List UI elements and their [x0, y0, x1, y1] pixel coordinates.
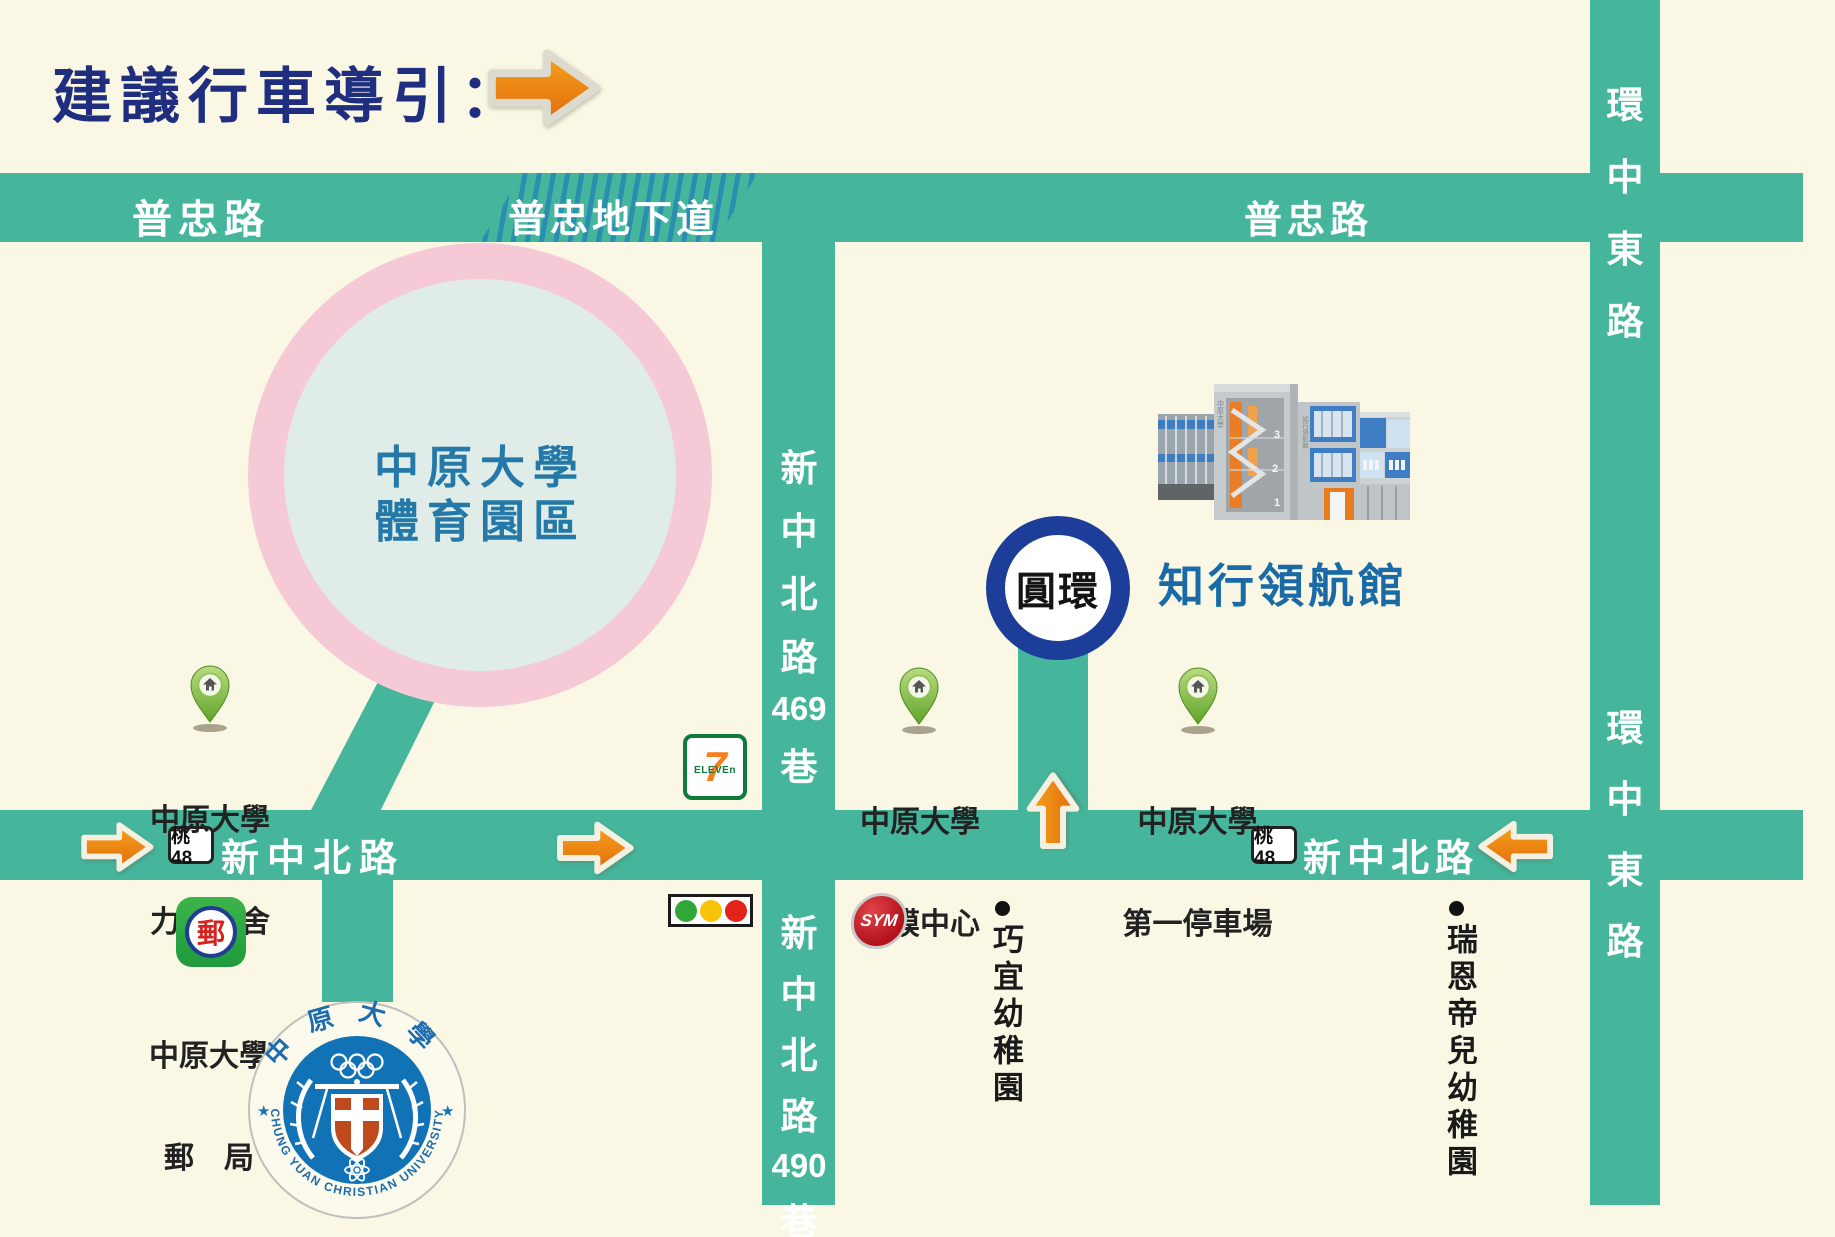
arrow-north-to-roundabout-icon — [1024, 770, 1082, 850]
sports-park-label: 中原大學 體育園區 — [248, 441, 712, 549]
char: 北 — [781, 564, 818, 618]
ruiendier-dot-icon — [1449, 901, 1464, 916]
logo-star-right: ★ — [441, 1103, 454, 1120]
char: 東 — [1607, 840, 1644, 894]
label-xinzhongbei-right: 新中北路 — [1303, 827, 1479, 882]
char: 路 — [1607, 911, 1644, 965]
building-name-label: 知行領航館 — [1158, 550, 1408, 616]
poi-line2: 第一停車場 — [1105, 908, 1290, 942]
poi-parking-lot1-label: 中原大學 第一停車場 — [1105, 738, 1290, 1010]
eleven-glyph: ELEVEn — [687, 765, 743, 776]
char: 中 — [781, 501, 818, 555]
arrow-west-right-side-icon — [1476, 818, 1554, 875]
road-campus-stub — [322, 880, 393, 1002]
poi-line1: 中原大學 — [1105, 806, 1290, 840]
building-rendering: 中原大學 3 2 1 知行領航館 — [1156, 376, 1412, 536]
char: 新 — [781, 903, 818, 957]
char: 中 — [1607, 769, 1644, 823]
traffic-red — [725, 900, 747, 922]
seven-eleven-icon: 7 ELEVEn — [683, 734, 747, 800]
sports-park-circle: 中原大學 體育園區 — [248, 243, 712, 707]
roundabout-circle: 圓環 — [986, 516, 1130, 660]
lane-number: 490 — [771, 1147, 826, 1185]
post-office-icon: 郵 — [176, 897, 246, 967]
page-title: 建議行車導引： — [52, 48, 528, 135]
building-side-text: 中原大學 — [1217, 399, 1225, 429]
label-huanzhongdong-top: 環 中 東 路 — [1597, 75, 1653, 345]
roundabout-label: 圓環 — [1016, 559, 1100, 617]
poi-line1: 中原大學 — [830, 806, 1010, 840]
arrow-east-mid-icon — [556, 818, 636, 878]
building-floor1: 1 — [1274, 497, 1280, 509]
pin-lixing-dorm-icon — [187, 664, 233, 734]
sports-park-line1: 中原大學 — [248, 441, 712, 495]
poi-ruiendier-kindergarten-label: 瑞恩帝兒幼稚園 — [1437, 923, 1482, 1182]
char: 環 — [1607, 698, 1644, 752]
label-puzhong-right: 普忠路 — [1244, 189, 1373, 244]
char: 路 — [1607, 291, 1644, 345]
char: 路 — [781, 627, 818, 681]
poi-lixing-dorm-label: 中原大學 力行宿舍 — [120, 736, 300, 1008]
label-lane490: 新 中 北 路 490 巷 — [770, 903, 828, 1237]
char: 巷 — [781, 737, 818, 791]
traffic-light-icon — [668, 894, 753, 927]
road-puzhong — [0, 173, 1803, 242]
label-underpass: 普忠地下道 — [508, 188, 718, 243]
char: 北 — [781, 1025, 818, 1079]
building-floor3: 3 — [1274, 429, 1280, 441]
campus-direction-map: 建議行車導引： 中原大學 體育園區 普忠路 普忠地下道 普忠路 新中北路 新中北… — [0, 0, 1835, 1237]
traffic-green — [675, 900, 697, 922]
char: 中 — [1607, 147, 1644, 201]
char: 環 — [1607, 75, 1644, 129]
poi-line1: 中原大學 — [120, 804, 300, 838]
char: 東 — [1607, 219, 1644, 273]
char: 巷 — [781, 1192, 818, 1237]
label-puzhong-left: 普忠路 — [132, 187, 270, 245]
building-floor2: 2 — [1272, 463, 1278, 475]
pin-parking-lot1-icon — [1175, 666, 1221, 736]
post-office-glyph: 郵 — [185, 906, 237, 958]
sports-park-line2: 體育園區 — [248, 495, 712, 549]
poi-qiaoyi-kindergarten-label: 巧宜幼稚園 — [983, 923, 1028, 1108]
qiaoyi-dot-icon — [995, 901, 1010, 916]
char: 中 — [781, 964, 818, 1018]
lane-number: 469 — [771, 690, 826, 728]
logo-star-left: ★ — [257, 1103, 270, 1120]
traffic-yellow — [700, 900, 722, 922]
label-huanzhongdong-bottom: 環 中 東 路 — [1597, 698, 1653, 965]
char: 路 — [781, 1086, 818, 1140]
title-direction-arrow-icon — [486, 44, 604, 132]
pin-thinfilm-center-icon — [896, 666, 942, 736]
label-lane469: 新 中 北 路 469 巷 — [770, 438, 828, 791]
cycu-seal-logo: 中原大學 CHUNG YUAN CHRISTIAN UNIVERSITY ★ ★ — [247, 1000, 467, 1220]
char: 新 — [781, 438, 818, 492]
